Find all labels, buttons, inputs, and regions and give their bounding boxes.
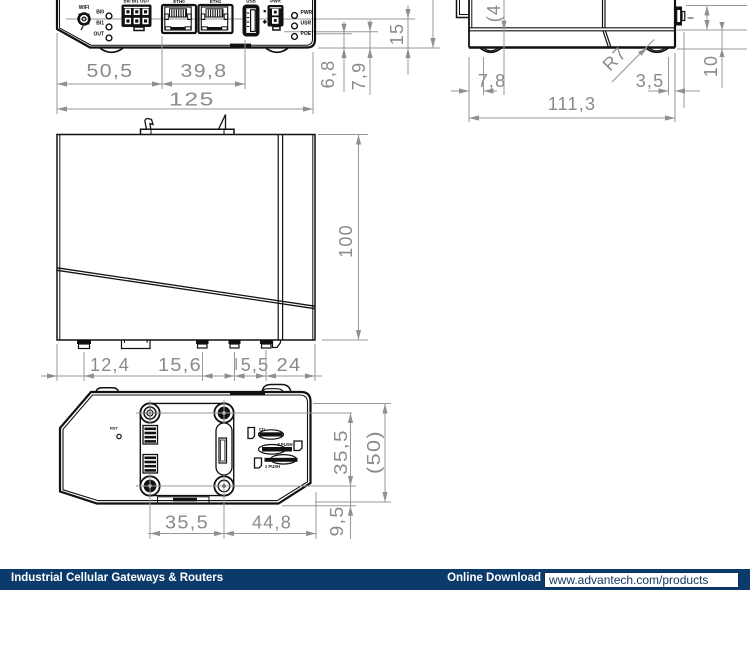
svg-text:1 PUSH: 1 PUSH	[265, 464, 280, 469]
svg-text:15,6: 15,6	[158, 355, 202, 375]
svg-text:3,5: 3,5	[636, 71, 665, 91]
svg-text:7,9: 7,9	[349, 62, 369, 91]
svg-text:6,8: 6,8	[318, 60, 338, 89]
svg-text:50,5: 50,5	[87, 61, 134, 81]
svg-text:7,8: 7,8	[478, 71, 507, 91]
svg-text:(50): (50)	[364, 430, 384, 474]
svg-text:BI0: BI0	[96, 10, 104, 16]
svg-text:BI1: BI1	[96, 21, 104, 27]
svg-text:44,8: 44,8	[252, 513, 292, 533]
svg-text:OUT: OUT	[93, 32, 104, 38]
svg-text:35,5: 35,5	[331, 429, 351, 475]
svg-text:RST: RST	[110, 426, 119, 431]
svg-text:2 PUSH: 2 PUSH	[277, 442, 292, 447]
svg-text:125: 125	[169, 90, 215, 110]
svg-text:ETH1: ETH1	[210, 0, 222, 4]
svg-text:35,5: 35,5	[165, 513, 209, 533]
svg-text:12,4: 12,4	[90, 355, 130, 375]
svg-text:PWR: PWR	[301, 10, 313, 16]
svg-text:10: 10	[701, 55, 721, 77]
svg-text:BI0 BI1 OUT: BI0 BI1 OUT	[123, 0, 149, 4]
svg-text:39,8: 39,8	[181, 61, 228, 81]
svg-text:9,5: 9,5	[327, 506, 347, 537]
svg-text:24: 24	[277, 355, 302, 375]
svg-text:100: 100	[336, 224, 356, 258]
svg-text:WIFI: WIFI	[79, 5, 90, 11]
svg-text:PWR: PWR	[270, 0, 281, 4]
svg-text:USB: USB	[246, 0, 256, 4]
svg-text:15: 15	[387, 23, 407, 45]
svg-text:ETH0: ETH0	[173, 0, 185, 4]
svg-text:5,5: 5,5	[241, 355, 270, 375]
svg-text:111,3: 111,3	[548, 94, 596, 114]
svg-text:CD: CD	[259, 427, 265, 432]
svg-text:POE: POE	[301, 31, 312, 37]
svg-text:(4: (4	[484, 4, 504, 22]
svg-text:USR: USR	[301, 21, 312, 27]
